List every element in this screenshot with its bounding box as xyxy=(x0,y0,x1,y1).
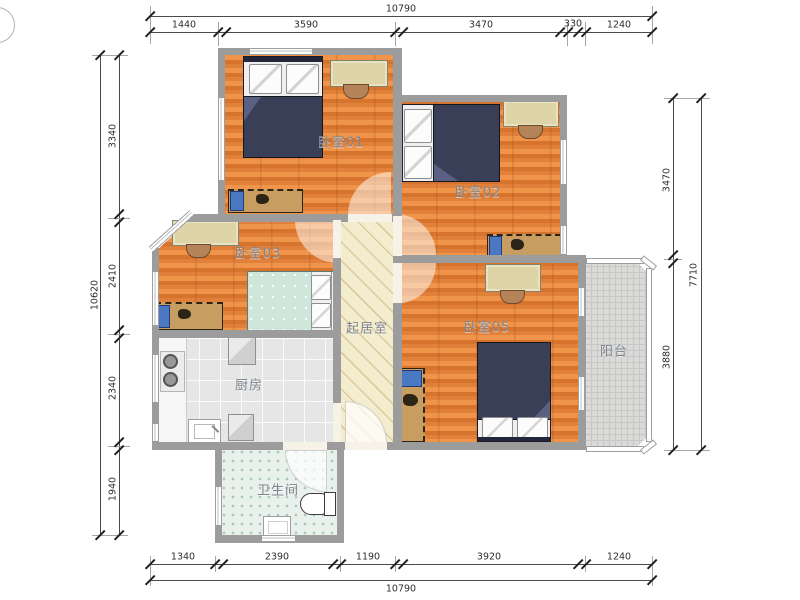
room-label-bedroom02: 卧室02 xyxy=(455,182,502,201)
desk xyxy=(485,264,541,292)
blue-appliance xyxy=(489,236,502,256)
room-label-bedroom03: 卧室03 xyxy=(235,243,282,262)
dim-right-total: 7710 xyxy=(689,263,700,287)
balcony-wall xyxy=(586,258,644,264)
pillow xyxy=(517,417,548,438)
dimension-line xyxy=(673,98,674,450)
duvet xyxy=(477,342,551,420)
floor-plan: 卧室01 卧室02 卧室03 卧室05 起居室 厨房 卫生间 阳台 xyxy=(0,0,800,600)
dim-bottom-seg: 1340 xyxy=(171,552,195,563)
extension-line xyxy=(108,218,130,219)
dim-top-total: 10790 xyxy=(386,4,416,15)
toilet-bowl xyxy=(300,493,325,515)
extension-line xyxy=(108,446,130,447)
room-label-kitchen: 厨房 xyxy=(235,375,263,394)
double-bed xyxy=(398,104,500,182)
dim-top-seg: 3590 xyxy=(294,20,318,31)
stove-burner xyxy=(163,372,178,387)
dim-bottom-total: 10790 xyxy=(386,584,416,595)
room-label-balcony: 阳台 xyxy=(600,341,628,360)
balcony-wall xyxy=(646,268,652,442)
extension-line xyxy=(585,22,586,46)
dim-top-seg: 1240 xyxy=(607,20,631,31)
dim-bottom-seg: 1240 xyxy=(607,552,631,563)
window xyxy=(152,355,159,402)
extension-line xyxy=(108,334,130,335)
blue-appliance xyxy=(400,370,422,387)
extension-line xyxy=(652,6,653,44)
pillow xyxy=(311,275,331,300)
dim-top-seg: 330 xyxy=(564,19,582,30)
wall xyxy=(578,255,586,450)
headboard xyxy=(244,57,322,62)
window xyxy=(152,424,159,441)
sink-basin xyxy=(268,521,288,534)
window xyxy=(218,98,225,180)
bathroom-sink xyxy=(263,516,291,537)
door-opening xyxy=(393,216,402,256)
room-label-bathroom: 卫生间 xyxy=(257,480,299,499)
dim-left-total: 10620 xyxy=(90,280,101,310)
dim-left-seg: 1940 xyxy=(108,477,119,501)
single-bed xyxy=(247,271,337,331)
double-bed xyxy=(243,56,323,158)
bag-item xyxy=(511,239,524,250)
extension-line xyxy=(395,22,396,46)
entrance-opening xyxy=(345,442,387,450)
toilet-tank xyxy=(324,492,336,516)
pillow xyxy=(311,303,331,328)
double-bed xyxy=(477,342,551,442)
dim-right-seg: 3470 xyxy=(662,168,673,192)
stove-burner xyxy=(163,354,178,369)
pillow xyxy=(404,146,432,179)
door-opening xyxy=(333,403,341,442)
bag-item xyxy=(178,309,191,319)
window xyxy=(250,48,312,55)
window xyxy=(215,487,222,525)
wall xyxy=(337,443,344,543)
duvet xyxy=(248,272,312,330)
refrigerator xyxy=(228,337,256,365)
door-opening xyxy=(348,214,392,222)
door-opening xyxy=(393,263,402,303)
dim-left-seg: 3340 xyxy=(108,124,119,148)
pillow xyxy=(286,64,319,94)
balcony-wall xyxy=(586,446,644,452)
dimension-line xyxy=(150,580,652,581)
extension-line xyxy=(218,22,219,46)
blue-appliance xyxy=(230,191,244,211)
window xyxy=(262,535,295,543)
dim-right-seg: 3880 xyxy=(662,345,673,369)
dim-bottom-seg: 1190 xyxy=(356,552,380,563)
window xyxy=(152,272,159,325)
desk xyxy=(503,100,559,127)
window xyxy=(560,140,567,184)
wall xyxy=(152,330,341,338)
extension-line xyxy=(150,6,151,44)
window xyxy=(578,377,586,410)
dim-bottom-seg: 3920 xyxy=(477,552,501,563)
window xyxy=(560,226,567,254)
dim-left-seg: 2410 xyxy=(108,264,119,288)
dim-top-seg: 3470 xyxy=(469,20,493,31)
dimension-line xyxy=(150,16,652,17)
room-label-bedroom05: 卧室05 xyxy=(464,317,511,336)
dim-bottom-seg: 2390 xyxy=(265,552,289,563)
appliance xyxy=(228,414,254,441)
duvet xyxy=(243,96,323,158)
wall xyxy=(393,255,586,263)
kitchen-sink xyxy=(188,419,221,443)
pillow xyxy=(482,417,513,438)
bag-item xyxy=(256,194,269,204)
room-label-living: 起居室 xyxy=(346,318,388,337)
door-opening xyxy=(333,220,341,258)
corner-logo-circle xyxy=(0,7,15,43)
dimension-line xyxy=(119,55,120,535)
desk xyxy=(330,60,388,87)
footboard xyxy=(478,437,550,441)
wall xyxy=(393,95,567,102)
duvet xyxy=(433,104,500,182)
balcony-wall xyxy=(640,439,657,454)
dim-left-seg: 2340 xyxy=(108,376,119,400)
dimension-line xyxy=(701,98,702,450)
chair xyxy=(343,84,369,99)
room-label-bedroom01: 卧室01 xyxy=(318,132,365,151)
door-opening xyxy=(283,442,327,450)
dim-top-seg: 1440 xyxy=(172,20,196,31)
pillow xyxy=(404,109,432,143)
extension-line xyxy=(664,259,682,260)
window xyxy=(578,288,586,316)
bag-item xyxy=(403,394,418,406)
pillow xyxy=(249,64,282,94)
